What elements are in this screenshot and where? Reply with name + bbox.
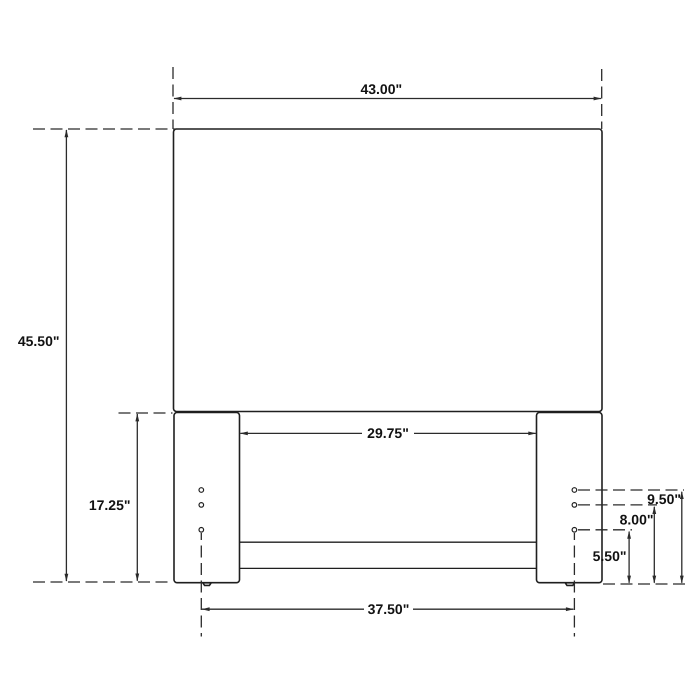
svg-text:43.00": 43.00": [360, 81, 402, 97]
svg-text:45.50": 45.50": [18, 333, 60, 349]
svg-text:37.50": 37.50": [368, 601, 410, 617]
svg-text:9.50": 9.50": [647, 491, 681, 507]
svg-text:8.00": 8.00": [620, 511, 654, 527]
svg-text:29.75": 29.75": [367, 425, 409, 441]
svg-text:5.50": 5.50": [593, 548, 627, 564]
svg-text:17.25": 17.25": [89, 497, 131, 513]
